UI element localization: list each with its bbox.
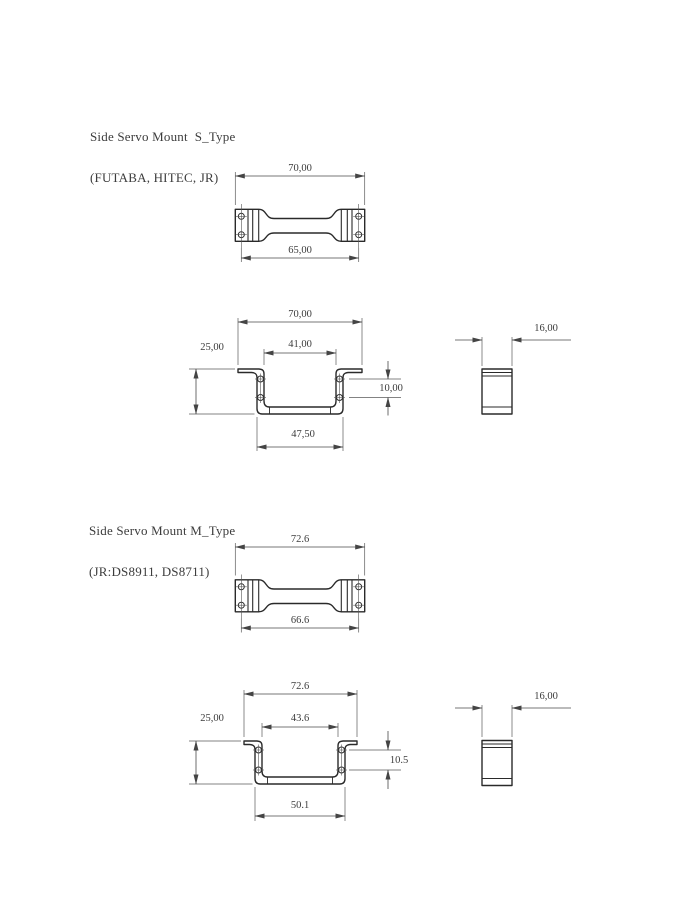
dim-front-height: 25,00 xyxy=(200,342,224,353)
s2-front-view-dimensions: 72.6 43.6 25,00 10.5 50.1 xyxy=(189,681,408,821)
channel-outline xyxy=(238,369,362,414)
dim-top-holes: 66.6 xyxy=(291,615,309,626)
dim-top-overall: 72.6 xyxy=(291,534,309,545)
dim-front-height: 25,00 xyxy=(200,713,224,724)
s2-top-view-dimensions: 72.6 66.6 xyxy=(235,534,364,633)
s1-side-view-dimensions: 16,00 xyxy=(455,323,571,366)
dim-side-depth: 16,00 xyxy=(534,691,558,702)
s1-front-view-part xyxy=(238,369,362,414)
s1-front-view-dimensions: 70,00 41,00 25,00 10,00 47,50 xyxy=(189,309,403,451)
s1-top-view-dimensions: 70,00 65,00 xyxy=(235,163,364,262)
drawing-page: Side Servo Mount S_Type (FUTABA, HITEC, … xyxy=(0,0,700,906)
dim-front-hole-spacing: 10,00 xyxy=(379,383,403,394)
dim-front-inner: 41,00 xyxy=(288,339,312,350)
dim-front-overall: 72.6 xyxy=(291,681,309,692)
dim-front-outer: 50.1 xyxy=(291,800,309,811)
s2-side-view-dimensions: 16,00 xyxy=(455,691,571,737)
dim-front-hole-spacing: 10.5 xyxy=(390,755,408,766)
dim-front-inner: 43.6 xyxy=(291,713,309,724)
dim-front-overall: 70,00 xyxy=(288,309,312,320)
s2-side-view-part xyxy=(482,741,512,786)
s2-top-view-part xyxy=(235,575,364,619)
dim-side-depth: 16,00 xyxy=(534,323,558,334)
s1-side-view-part xyxy=(482,369,512,414)
dogbone-outline xyxy=(235,209,364,241)
dim-top-holes: 65,00 xyxy=(288,245,312,256)
s1-top-view-part xyxy=(235,204,364,248)
technical-drawing-canvas: 70,00 65,00 70,00 xyxy=(0,0,700,906)
dim-top-overall: 70,00 xyxy=(288,163,312,174)
s2-front-view-part xyxy=(244,741,357,784)
dim-front-outer: 47,50 xyxy=(291,429,315,440)
